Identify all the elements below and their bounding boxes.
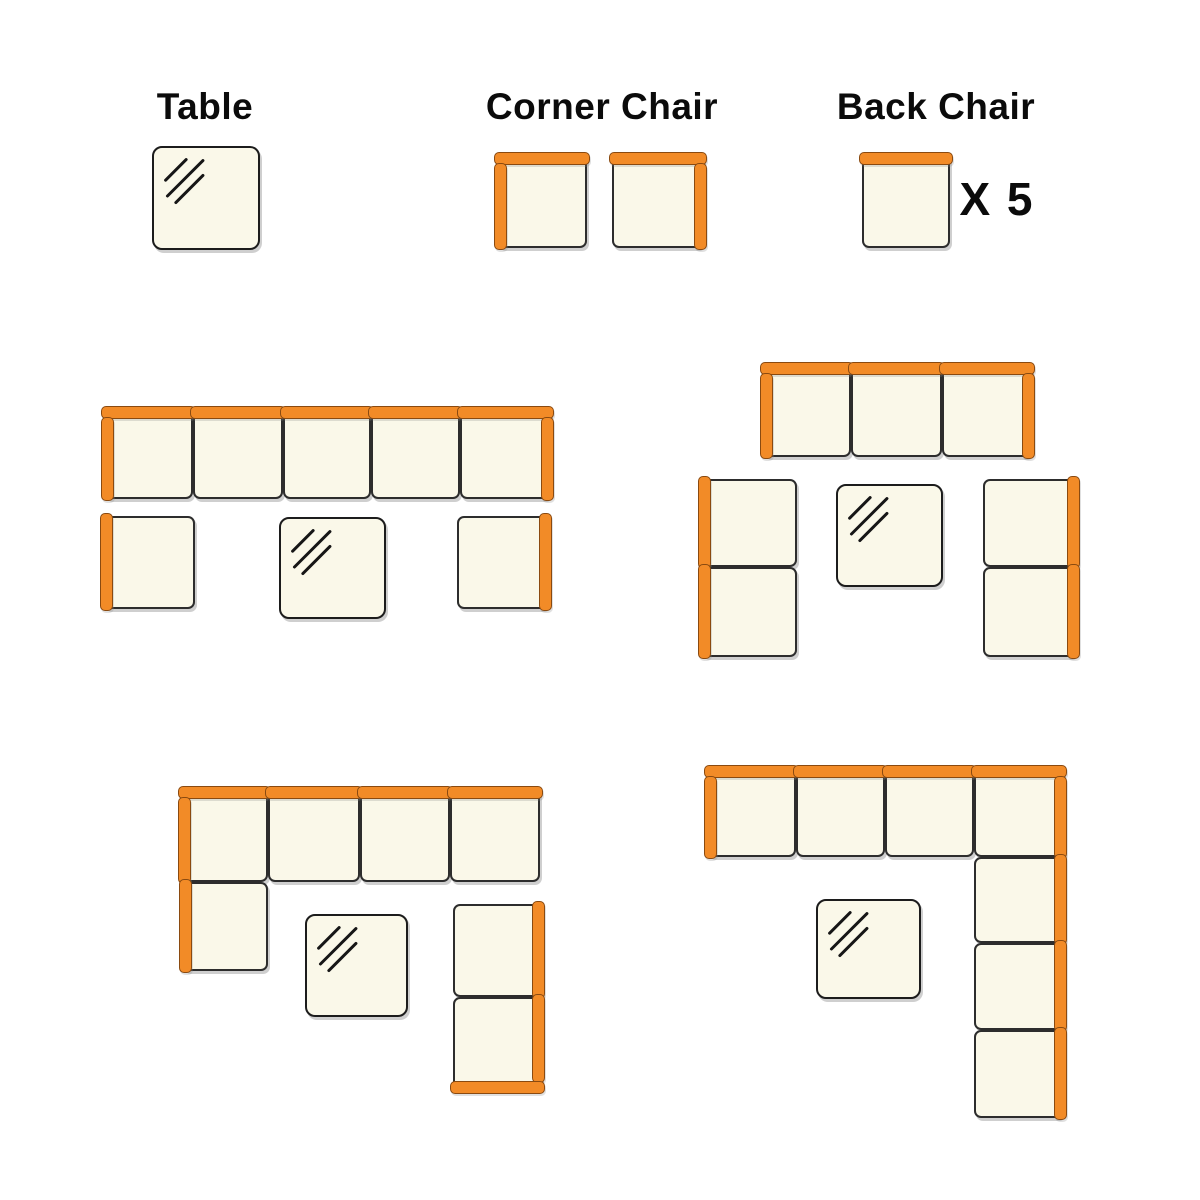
corner-chair — [612, 155, 704, 248]
seat-cushion — [182, 882, 268, 971]
seat-cushion — [983, 479, 1077, 567]
table — [152, 146, 260, 250]
back-chair — [974, 943, 1064, 1030]
seat-cushion — [460, 409, 551, 499]
back-chair — [885, 768, 974, 857]
table — [305, 914, 408, 1017]
seat-cushion — [796, 768, 885, 857]
glass-hatch-icon — [160, 154, 216, 210]
backrest-top — [793, 765, 888, 778]
backrest-top — [265, 786, 363, 799]
back-chair — [457, 516, 549, 609]
backrest-left — [100, 513, 113, 611]
backrest-bottom — [450, 1081, 545, 1094]
backrest-right — [532, 901, 545, 999]
back-chair-count: X 5 — [942, 172, 1052, 226]
backrest-top — [609, 152, 707, 165]
seat-cushion — [360, 789, 450, 882]
seat-cushion — [103, 516, 195, 609]
seat-cushion — [457, 516, 549, 609]
backrest-top — [848, 362, 945, 375]
seat-cushion — [862, 155, 950, 248]
glass-hatch-icon — [287, 525, 343, 581]
seat-cushion — [763, 365, 851, 457]
seat-cushion — [707, 768, 796, 857]
back-chair — [701, 479, 797, 567]
backrest-left — [101, 417, 114, 501]
seat-cushion — [983, 567, 1077, 657]
seat-cushion — [181, 789, 268, 882]
back-chair — [453, 904, 542, 997]
seat-cushion — [851, 365, 942, 457]
glass-hatch-icon — [824, 907, 880, 963]
backrest-top — [494, 152, 590, 165]
seat-cushion — [701, 567, 797, 657]
backrest-top — [704, 765, 799, 778]
backrest-top — [178, 786, 271, 799]
glass-hatch-icon — [844, 492, 900, 548]
seat-cushion — [268, 789, 360, 882]
back-chair — [974, 857, 1064, 943]
corner-chair — [497, 155, 587, 248]
back-chair — [268, 789, 360, 882]
seat-cushion — [701, 479, 797, 567]
corner-chair — [460, 409, 551, 499]
back-chair — [983, 567, 1077, 657]
glass-hatch-icon — [313, 922, 369, 978]
back-chair — [701, 567, 797, 657]
table — [279, 517, 386, 619]
backrest-top — [447, 786, 543, 799]
backrest-left — [698, 476, 711, 569]
back-chair — [983, 479, 1077, 567]
backrest-top — [280, 406, 374, 419]
seat-cushion — [193, 409, 283, 499]
table — [816, 899, 921, 999]
back-chair — [862, 155, 950, 248]
backrest-right — [1067, 476, 1080, 569]
backrest-right — [1067, 564, 1080, 659]
seat-cushion — [885, 768, 974, 857]
backrest-right — [539, 513, 552, 611]
back-chair — [193, 409, 283, 499]
backrest-top — [971, 765, 1067, 778]
backrest-right — [541, 417, 554, 501]
legend-title-corner-chair: Corner Chair — [452, 86, 752, 128]
corner-chair — [942, 365, 1032, 457]
backrest-right — [694, 163, 707, 250]
seat-cushion — [612, 155, 704, 248]
corner-chair — [763, 365, 851, 457]
back-chair — [851, 365, 942, 457]
back-chair — [360, 789, 450, 882]
seat-cushion — [283, 409, 371, 499]
back-chair — [974, 1030, 1064, 1118]
backrest-left — [698, 564, 711, 659]
back-chair — [182, 882, 268, 971]
back-chair — [103, 516, 195, 609]
corner-chair — [974, 768, 1064, 857]
back-chair — [450, 789, 540, 882]
seat-cushion — [942, 365, 1032, 457]
seat-cushion — [371, 409, 460, 499]
backrest-right — [532, 994, 545, 1083]
seat-cushion — [974, 1030, 1064, 1118]
seat-cushion — [104, 409, 193, 499]
backrest-right — [1054, 1027, 1067, 1120]
seat-cushion — [974, 768, 1064, 857]
backrest-left — [178, 797, 191, 884]
seat-cushion — [453, 997, 542, 1091]
backrest-top — [939, 362, 1035, 375]
corner-chair — [104, 409, 193, 499]
furniture-layout-diagram: Table Corner Chair Back Chair X 5 — [0, 0, 1200, 1200]
backrest-left — [494, 163, 507, 250]
backrest-right — [1054, 940, 1067, 1032]
backrest-top — [457, 406, 554, 419]
back-chair — [371, 409, 460, 499]
backrest-top — [859, 152, 953, 165]
seat-cushion — [450, 789, 540, 882]
corner-chair — [453, 997, 542, 1091]
backrest-top — [190, 406, 286, 419]
backrest-left — [179, 879, 192, 973]
backrest-right — [1054, 776, 1067, 859]
backrest-left — [760, 373, 773, 459]
corner-chair — [707, 768, 796, 857]
backrest-top — [760, 362, 854, 375]
back-chair — [796, 768, 885, 857]
backrest-right — [1022, 373, 1035, 459]
backrest-top — [357, 786, 453, 799]
seat-cushion — [974, 943, 1064, 1030]
back-chair — [283, 409, 371, 499]
legend-title-table: Table — [55, 86, 355, 128]
seat-cushion — [974, 857, 1064, 943]
legend-title-back-chair: Back Chair — [786, 86, 1086, 128]
table — [836, 484, 943, 587]
corner-chair — [181, 789, 268, 882]
seat-cushion — [453, 904, 542, 997]
backrest-top — [101, 406, 196, 419]
backrest-right — [1054, 854, 1067, 945]
backrest-top — [882, 765, 977, 778]
backrest-top — [368, 406, 463, 419]
seat-cushion — [497, 155, 587, 248]
backrest-left — [704, 776, 717, 859]
